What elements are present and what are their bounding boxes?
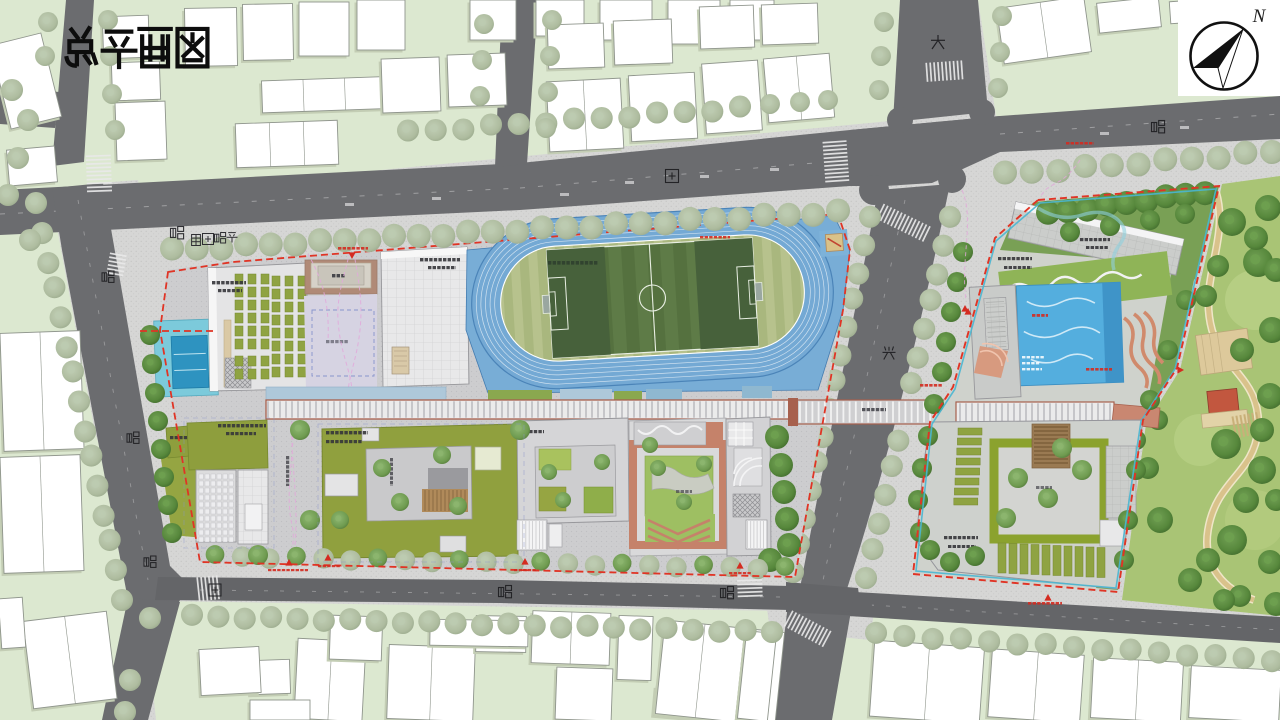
svg-text:N: N <box>1252 6 1267 27</box>
